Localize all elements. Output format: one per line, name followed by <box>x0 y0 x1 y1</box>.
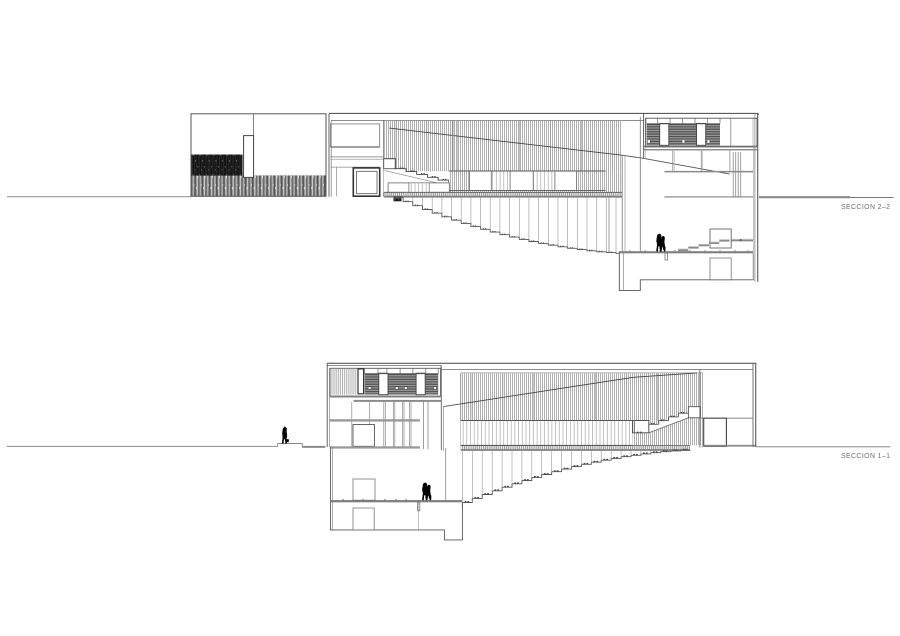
svg-text:SECCION 2–2: SECCION 2–2 <box>841 204 890 211</box>
svg-text:SECCION 1–1: SECCION 1–1 <box>841 453 890 460</box>
